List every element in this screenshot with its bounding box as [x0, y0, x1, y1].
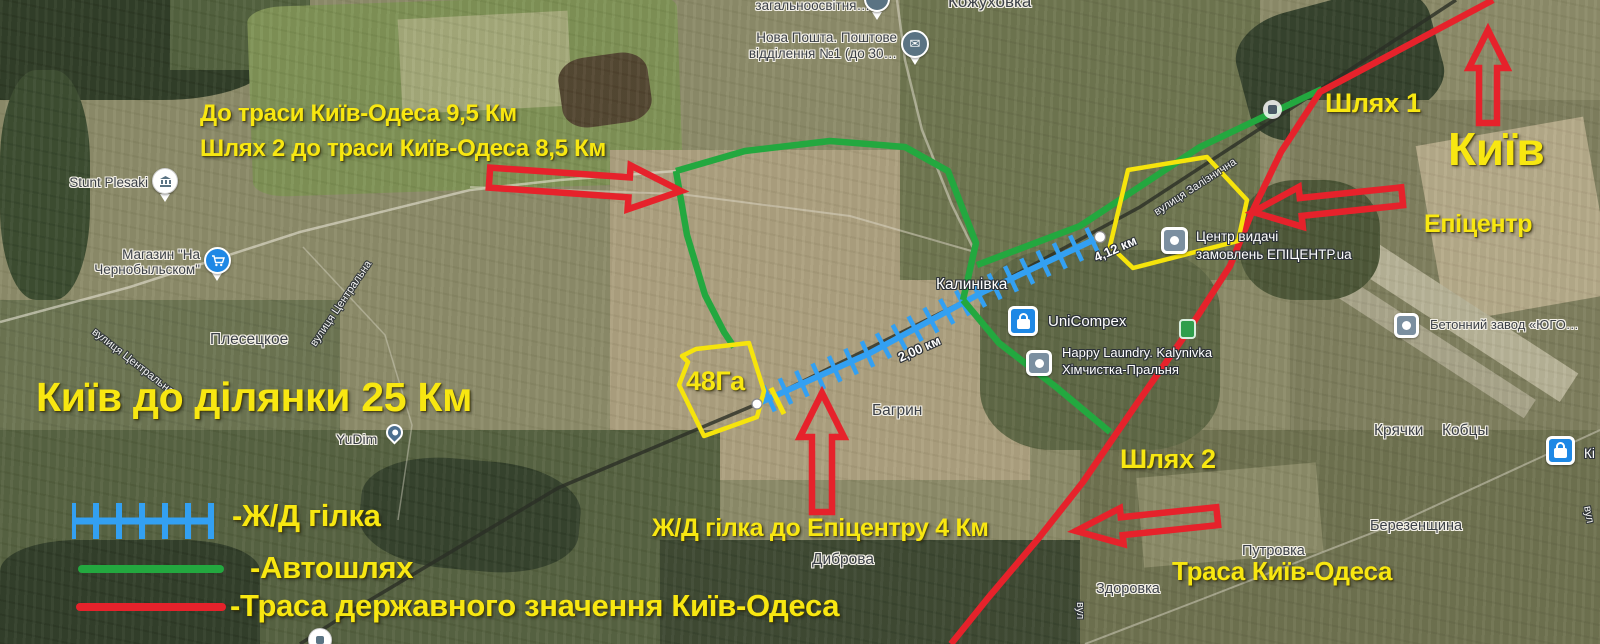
annotation-distance-line1: До траси Київ-Одеса 9,5 Км — [200, 100, 517, 128]
town-label-zdorovka[interactable]: Здоровка — [1096, 581, 1160, 597]
poi-label-line: Центр видачі — [1196, 228, 1352, 246]
poi-label-line: відділення №1 (до 30… — [705, 46, 897, 62]
stunt-plesaki-stem-icon — [160, 194, 170, 202]
poi-label-line: Хімчистка-Пральня — [1062, 361, 1212, 378]
epicentr-pickup-icon[interactable] — [1161, 227, 1188, 254]
poi-label-line: Магазин "На — [55, 247, 200, 262]
town-label-berezenshchyna[interactable]: Березенщина — [1370, 518, 1462, 534]
map-canvas[interactable]: Кожуховка загальноосвітня… Нова Пошта. П… — [0, 0, 1600, 644]
measure-label-200: 2,00 км — [896, 334, 943, 366]
poi-label-line: Happy Laundry. Kalynivka — [1062, 344, 1212, 361]
poi-label-school[interactable]: загальноосвітня… — [660, 0, 870, 13]
annotation-distance-line2: Шлях 2 до траси Київ-Одеса 8,5 Км — [200, 135, 606, 163]
street-label-vul: вул — [1581, 505, 1596, 524]
poi-label-stunt-plesaki[interactable]: Stunt Plesaki — [40, 175, 148, 190]
school-pin-stem-icon — [872, 12, 882, 20]
poi-label-line: замовлень ЕПІЦЕНТР.ua — [1196, 246, 1352, 264]
unicompex-bag-icon[interactable] — [1008, 306, 1038, 336]
poi-label-shop[interactable]: Магазин "На Чернобыльском" — [55, 247, 200, 277]
annotation-path2: Шлях 2 — [1120, 444, 1216, 475]
town-label-dybrova[interactable]: Диброва — [812, 551, 874, 568]
annotation-path1: Шлях 1 — [1325, 88, 1421, 119]
museum-building-icon — [159, 175, 172, 188]
nova-poshta-stem-icon — [910, 57, 920, 65]
legend-road-label: -Автошлях — [250, 550, 413, 586]
street-label-zaliznychna: вулиця Залізнична — [1152, 156, 1239, 218]
shopping-bag-icon — [1017, 319, 1030, 329]
annotation-kyiv: Київ — [1448, 122, 1544, 176]
poi-label-concrete-plant[interactable]: Бетонний завод «ЮГО… — [1430, 318, 1579, 333]
pin-dot-icon — [390, 428, 398, 436]
square-dot-icon — [1402, 321, 1411, 330]
annotation-rail-branch: Ж/Д гілка до Епіцентру 4 Км — [652, 514, 989, 543]
shop-cart-icon[interactable] — [204, 247, 231, 274]
annotation-kyiv-to-plot: Київ до ділянки 25 Км — [36, 374, 472, 421]
poi-label-unicompex[interactable]: UniCompex — [1048, 314, 1126, 331]
legend-highway-label: -Траса державного значення Київ-Одеса — [230, 588, 839, 624]
stunt-plesaki-icon[interactable] — [152, 168, 178, 194]
nova-poshta-icon[interactable]: ✉ — [901, 30, 929, 58]
pin-glyph-icon — [316, 636, 324, 644]
road-poi-icon[interactable] — [1263, 100, 1282, 119]
shopping-cart-icon — [211, 254, 225, 268]
square-dot-icon — [1035, 359, 1044, 368]
poi-label-nova-poshta[interactable]: Нова Пошта. Поштове відділення №1 (до 30… — [705, 30, 897, 61]
concrete-plant-icon[interactable] — [1394, 313, 1419, 338]
street-label-centralna: вулиця Центральна — [308, 259, 375, 349]
laundry-icon[interactable] — [1026, 350, 1052, 376]
town-label-kozhukhovka[interactable]: Кожуховка — [948, 0, 1031, 11]
poi-label-store-partial[interactable]: Кі — [1584, 446, 1595, 461]
annotation-epicentr: Епіцентр — [1424, 210, 1532, 239]
street-label-vul: вул — [1074, 602, 1086, 619]
square-dot-icon — [1170, 236, 1179, 245]
poi-label-line: Нова Пошта. Поштове — [705, 30, 897, 46]
poi-label-laundry[interactable]: Happy Laundry. Kalynivka Хімчистка-Праль… — [1062, 344, 1212, 378]
transit-glyph-icon — [1268, 105, 1277, 114]
store-bag-icon[interactable] — [1546, 436, 1575, 465]
poi-label-epicentr-pickup[interactable]: Центр видачі замовлень ЕПІЦЕНТР.ua — [1196, 228, 1352, 263]
town-label-kobtsy[interactable]: Кобцы — [1442, 422, 1489, 439]
poi-label-yudim[interactable]: YuDim — [336, 432, 377, 448]
town-label-plesetske[interactable]: Плесецкое — [210, 331, 288, 348]
town-label-kalynivka[interactable]: Калинівка — [936, 276, 1007, 293]
annotation-plot-area: 48Га — [686, 366, 745, 397]
legend-railway-label: -Ж/Д гілка — [232, 498, 381, 534]
annotation-highway: Траса Київ-Одеса — [1172, 556, 1392, 587]
shop-cart-stem-icon — [212, 273, 222, 281]
town-label-kriachky[interactable]: Крячки — [1374, 422, 1423, 439]
town-label-bahryn[interactable]: Багрин — [872, 402, 922, 419]
shopping-bag-icon — [1554, 448, 1567, 458]
poi-label-line: Чернобыльском" — [55, 262, 200, 277]
measure-label-412: 4,12 км — [1092, 234, 1139, 266]
